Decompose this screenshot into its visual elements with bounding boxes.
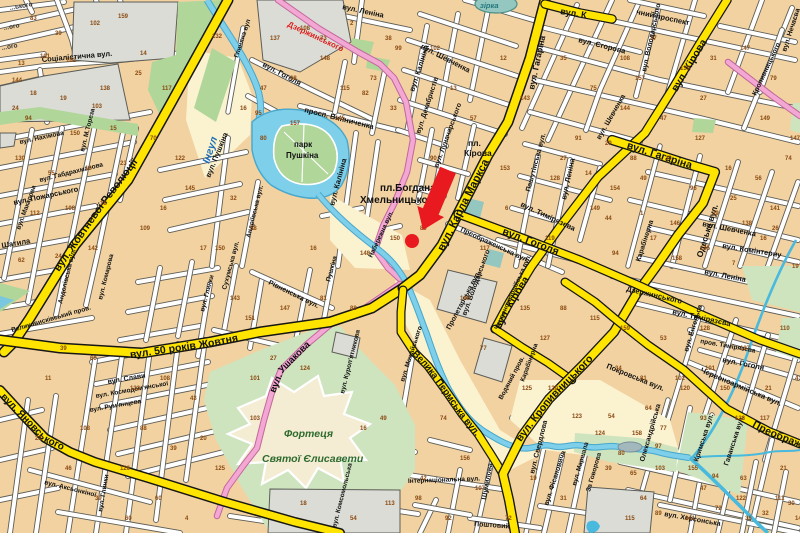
svg-text:77: 77 xyxy=(480,346,487,352)
svg-text:111: 111 xyxy=(775,496,785,502)
svg-text:39: 39 xyxy=(95,496,102,502)
svg-text:27: 27 xyxy=(700,96,707,102)
svg-text:120: 120 xyxy=(548,386,559,392)
svg-text:157: 157 xyxy=(635,76,646,82)
svg-text:81: 81 xyxy=(320,296,327,302)
svg-text:95: 95 xyxy=(255,111,262,117)
svg-text:34: 34 xyxy=(615,366,622,372)
svg-text:125: 125 xyxy=(215,466,226,472)
svg-text:158: 158 xyxy=(672,256,683,262)
svg-text:18: 18 xyxy=(300,501,307,507)
svg-text:139: 139 xyxy=(680,66,691,72)
svg-text:54: 54 xyxy=(608,414,615,420)
svg-text:55: 55 xyxy=(48,171,55,177)
svg-text:23: 23 xyxy=(120,161,127,167)
svg-text:27: 27 xyxy=(270,356,277,362)
svg-text:101: 101 xyxy=(705,366,716,372)
svg-text:Фортеця: Фортеця xyxy=(284,428,333,440)
svg-text:16: 16 xyxy=(760,236,767,242)
svg-text:15: 15 xyxy=(110,126,117,132)
svg-text:19: 19 xyxy=(792,264,799,270)
svg-text:108: 108 xyxy=(160,376,171,382)
svg-text:75: 75 xyxy=(590,86,597,92)
svg-text:31: 31 xyxy=(710,56,717,62)
svg-text:122: 122 xyxy=(736,496,747,502)
svg-text:16: 16 xyxy=(160,206,167,212)
svg-text:90: 90 xyxy=(430,156,437,162)
svg-text:83: 83 xyxy=(30,16,37,22)
svg-text:145: 145 xyxy=(335,116,346,122)
svg-text:19: 19 xyxy=(530,476,537,482)
svg-text:148: 148 xyxy=(320,56,331,62)
svg-text:102: 102 xyxy=(90,21,101,27)
svg-text:119: 119 xyxy=(545,236,555,242)
svg-text:39: 39 xyxy=(712,211,719,217)
svg-text:11: 11 xyxy=(45,376,52,382)
svg-text:108: 108 xyxy=(300,26,311,32)
svg-text:124: 124 xyxy=(300,366,311,372)
svg-text:16: 16 xyxy=(725,166,732,172)
svg-text:47: 47 xyxy=(700,486,707,492)
svg-text:150: 150 xyxy=(215,246,226,252)
svg-text:147: 147 xyxy=(790,136,800,142)
svg-text:64: 64 xyxy=(645,406,652,412)
svg-text:117: 117 xyxy=(760,416,770,422)
svg-text:126: 126 xyxy=(120,466,131,472)
svg-text:30: 30 xyxy=(788,501,795,507)
svg-text:89: 89 xyxy=(655,511,662,517)
svg-text:127: 127 xyxy=(695,136,706,142)
svg-text:148: 148 xyxy=(360,251,371,257)
svg-text:42: 42 xyxy=(420,476,427,482)
svg-text:63: 63 xyxy=(740,476,747,482)
svg-text:60: 60 xyxy=(125,516,132,522)
svg-text:145: 145 xyxy=(185,186,196,192)
svg-text:153: 153 xyxy=(500,166,511,172)
svg-text:77: 77 xyxy=(660,426,667,432)
svg-text:147: 147 xyxy=(280,306,291,312)
svg-text:88: 88 xyxy=(560,306,567,312)
svg-text:Кірова: Кірова xyxy=(464,148,492,158)
svg-text:115: 115 xyxy=(625,516,635,522)
svg-text:148: 148 xyxy=(460,296,471,302)
svg-text:14: 14 xyxy=(585,171,592,177)
svg-text:102: 102 xyxy=(675,376,686,382)
svg-text:54: 54 xyxy=(350,516,357,522)
svg-text:16: 16 xyxy=(240,106,247,112)
svg-text:107: 107 xyxy=(475,486,486,492)
svg-text:151: 151 xyxy=(245,316,256,322)
svg-text:97: 97 xyxy=(655,444,662,450)
svg-text:143: 143 xyxy=(520,96,531,102)
svg-text:44: 44 xyxy=(605,216,612,222)
svg-text:158: 158 xyxy=(632,431,643,437)
svg-text:142: 142 xyxy=(88,246,99,252)
svg-text:16: 16 xyxy=(360,426,367,432)
svg-text:43: 43 xyxy=(190,396,197,402)
svg-text:74: 74 xyxy=(785,156,792,162)
svg-text:112: 112 xyxy=(30,211,40,217)
svg-text:24: 24 xyxy=(55,254,62,260)
svg-text:144: 144 xyxy=(12,78,23,84)
svg-text:138: 138 xyxy=(100,86,111,92)
svg-text:135: 135 xyxy=(520,306,531,312)
svg-text:73: 73 xyxy=(370,76,377,82)
svg-text:115: 115 xyxy=(590,316,600,322)
svg-text:82: 82 xyxy=(362,91,369,97)
svg-text:88: 88 xyxy=(630,156,637,162)
svg-text:154: 154 xyxy=(610,186,621,192)
svg-text:102: 102 xyxy=(430,46,441,52)
svg-text:20: 20 xyxy=(200,436,207,442)
svg-text:102: 102 xyxy=(66,58,77,64)
svg-text:150: 150 xyxy=(720,386,731,392)
svg-text:103: 103 xyxy=(250,416,261,422)
svg-text:58: 58 xyxy=(250,226,257,232)
svg-text:25: 25 xyxy=(135,71,142,77)
svg-text:117: 117 xyxy=(480,246,490,252)
svg-text:130: 130 xyxy=(15,156,26,162)
svg-text:24: 24 xyxy=(12,106,19,112)
svg-text:39: 39 xyxy=(170,446,177,452)
svg-text:79: 79 xyxy=(770,76,777,82)
svg-text:32: 32 xyxy=(230,196,237,202)
svg-text:39: 39 xyxy=(605,466,612,472)
svg-text:81: 81 xyxy=(640,376,647,382)
svg-text:56: 56 xyxy=(755,176,762,182)
svg-text:128: 128 xyxy=(735,416,746,422)
svg-text:103: 103 xyxy=(655,466,666,472)
svg-text:88: 88 xyxy=(140,426,147,432)
svg-text:19: 19 xyxy=(60,96,67,102)
svg-text:108: 108 xyxy=(620,56,631,62)
svg-text:103: 103 xyxy=(92,104,103,110)
svg-text:123: 123 xyxy=(572,414,583,420)
svg-text:18: 18 xyxy=(30,91,37,97)
svg-text:68: 68 xyxy=(290,76,297,82)
svg-text:128: 128 xyxy=(550,176,561,182)
svg-text:70: 70 xyxy=(150,136,157,142)
svg-text:17: 17 xyxy=(200,246,207,252)
svg-text:150: 150 xyxy=(390,236,401,242)
svg-text:88: 88 xyxy=(350,306,357,312)
svg-text:72: 72 xyxy=(505,516,512,522)
svg-text:27: 27 xyxy=(560,156,567,162)
svg-text:33: 33 xyxy=(390,106,397,112)
svg-text:49: 49 xyxy=(640,176,647,182)
svg-text:117: 117 xyxy=(162,86,172,92)
svg-text:122: 122 xyxy=(175,156,186,162)
svg-text:47: 47 xyxy=(660,116,667,122)
svg-text:36: 36 xyxy=(745,516,752,522)
svg-text:13: 13 xyxy=(18,61,25,67)
svg-text:143: 143 xyxy=(230,296,241,302)
svg-text:46: 46 xyxy=(65,466,72,472)
svg-text:53: 53 xyxy=(660,336,667,342)
svg-text:пл.: пл. xyxy=(468,138,481,148)
svg-text:35: 35 xyxy=(560,56,567,62)
svg-text:31: 31 xyxy=(560,496,567,502)
svg-text:99: 99 xyxy=(395,46,402,52)
svg-text:141: 141 xyxy=(770,206,781,212)
svg-text:60: 60 xyxy=(155,496,162,502)
svg-text:94: 94 xyxy=(25,116,32,122)
svg-text:30: 30 xyxy=(665,156,672,162)
svg-text:47: 47 xyxy=(260,86,267,92)
svg-text:49: 49 xyxy=(380,416,387,422)
svg-text:146: 146 xyxy=(670,221,681,227)
svg-text:26: 26 xyxy=(772,226,779,232)
svg-text:парк: парк xyxy=(294,140,313,149)
svg-text:94: 94 xyxy=(612,251,619,257)
svg-text:32: 32 xyxy=(762,511,769,517)
svg-text:пл.Богдана: пл.Богдана xyxy=(380,183,436,194)
svg-text:149: 149 xyxy=(760,116,771,122)
svg-text:141: 141 xyxy=(795,516,800,522)
svg-text:80: 80 xyxy=(618,451,625,457)
svg-text:21: 21 xyxy=(780,466,787,472)
svg-text:147: 147 xyxy=(740,46,751,52)
svg-text:57: 57 xyxy=(470,116,477,122)
svg-text:94: 94 xyxy=(712,474,719,480)
svg-text:159: 159 xyxy=(118,14,129,20)
svg-text:98: 98 xyxy=(415,496,422,502)
svg-text:150: 150 xyxy=(70,131,81,137)
svg-text:92: 92 xyxy=(445,516,452,522)
svg-text:18: 18 xyxy=(100,201,107,207)
svg-text:74: 74 xyxy=(440,416,447,422)
svg-text:109: 109 xyxy=(140,226,151,232)
svg-text:64: 64 xyxy=(640,496,647,502)
svg-text:124: 124 xyxy=(595,431,606,437)
svg-text:91: 91 xyxy=(575,136,582,142)
svg-text:128: 128 xyxy=(700,326,711,332)
svg-text:12: 12 xyxy=(500,56,507,62)
svg-text:137: 137 xyxy=(270,36,281,42)
svg-text:144: 144 xyxy=(620,106,631,112)
svg-text:101: 101 xyxy=(40,54,51,60)
svg-text:115: 115 xyxy=(340,86,350,92)
svg-text:132: 132 xyxy=(130,386,141,392)
svg-text:93: 93 xyxy=(700,416,707,422)
svg-text:120: 120 xyxy=(680,386,691,392)
svg-text:127: 127 xyxy=(540,336,551,342)
svg-text:137: 137 xyxy=(740,346,751,352)
svg-text:110: 110 xyxy=(780,326,790,332)
svg-text:17: 17 xyxy=(650,236,657,242)
svg-text:80: 80 xyxy=(260,136,267,142)
svg-text:43: 43 xyxy=(795,376,800,382)
svg-text:16: 16 xyxy=(310,246,317,252)
svg-text:21: 21 xyxy=(765,386,772,392)
svg-text:113: 113 xyxy=(385,501,395,507)
svg-text:Пушкіна: Пушкіна xyxy=(286,151,319,160)
svg-text:зірка: зірка xyxy=(480,1,499,10)
svg-text:37: 37 xyxy=(650,36,657,42)
svg-text:29: 29 xyxy=(605,141,612,147)
svg-text:25: 25 xyxy=(730,196,737,202)
svg-text:156: 156 xyxy=(460,456,471,462)
svg-text:157: 157 xyxy=(290,121,301,127)
svg-text:101: 101 xyxy=(250,376,261,382)
svg-text:141: 141 xyxy=(685,516,696,522)
svg-text:159: 159 xyxy=(620,326,631,332)
svg-text:145: 145 xyxy=(700,246,711,252)
svg-text:125: 125 xyxy=(522,386,533,392)
svg-text:73: 73 xyxy=(320,36,327,42)
svg-text:132: 132 xyxy=(212,34,223,40)
svg-text:60: 60 xyxy=(90,356,97,362)
svg-text:38: 38 xyxy=(385,36,392,42)
svg-text:155: 155 xyxy=(688,466,699,472)
svg-text:13: 13 xyxy=(450,86,457,92)
svg-text:138: 138 xyxy=(742,221,753,227)
svg-text:65: 65 xyxy=(630,471,637,477)
svg-text:10: 10 xyxy=(85,166,92,172)
svg-text:149: 149 xyxy=(590,206,601,212)
svg-text:14: 14 xyxy=(140,51,147,57)
svg-text:108: 108 xyxy=(80,426,91,432)
svg-text:108: 108 xyxy=(65,206,76,212)
svg-text:96: 96 xyxy=(690,186,697,192)
svg-text:39: 39 xyxy=(60,346,67,352)
svg-text:62: 62 xyxy=(18,258,25,264)
svg-text:39: 39 xyxy=(55,31,62,37)
svg-text:72: 72 xyxy=(715,506,722,512)
svg-text:22: 22 xyxy=(35,436,42,442)
